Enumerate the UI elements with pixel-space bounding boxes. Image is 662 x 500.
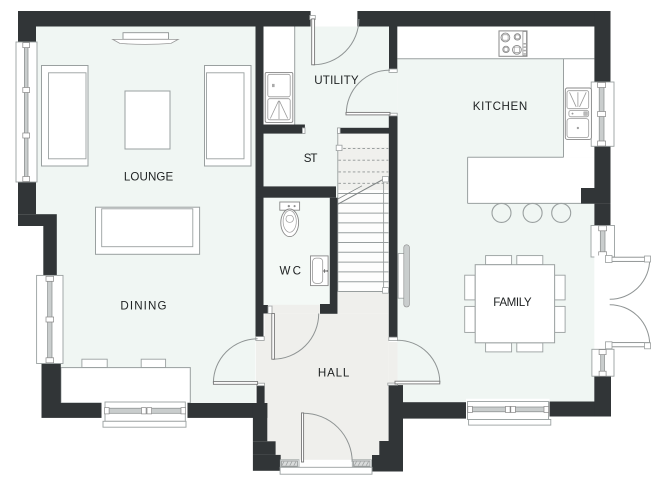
svg-text:WC: WC bbox=[280, 265, 304, 278]
svg-text:HALL: HALL bbox=[318, 367, 350, 380]
svg-text:LOUNGE: LOUNGE bbox=[124, 171, 174, 184]
svg-text:KITCHEN: KITCHEN bbox=[473, 100, 528, 113]
svg-text:DINING: DINING bbox=[120, 300, 167, 313]
svg-text:ST: ST bbox=[304, 152, 318, 165]
svg-text:FAMILY: FAMILY bbox=[493, 296, 532, 309]
svg-text:UTILITY: UTILITY bbox=[314, 74, 359, 87]
